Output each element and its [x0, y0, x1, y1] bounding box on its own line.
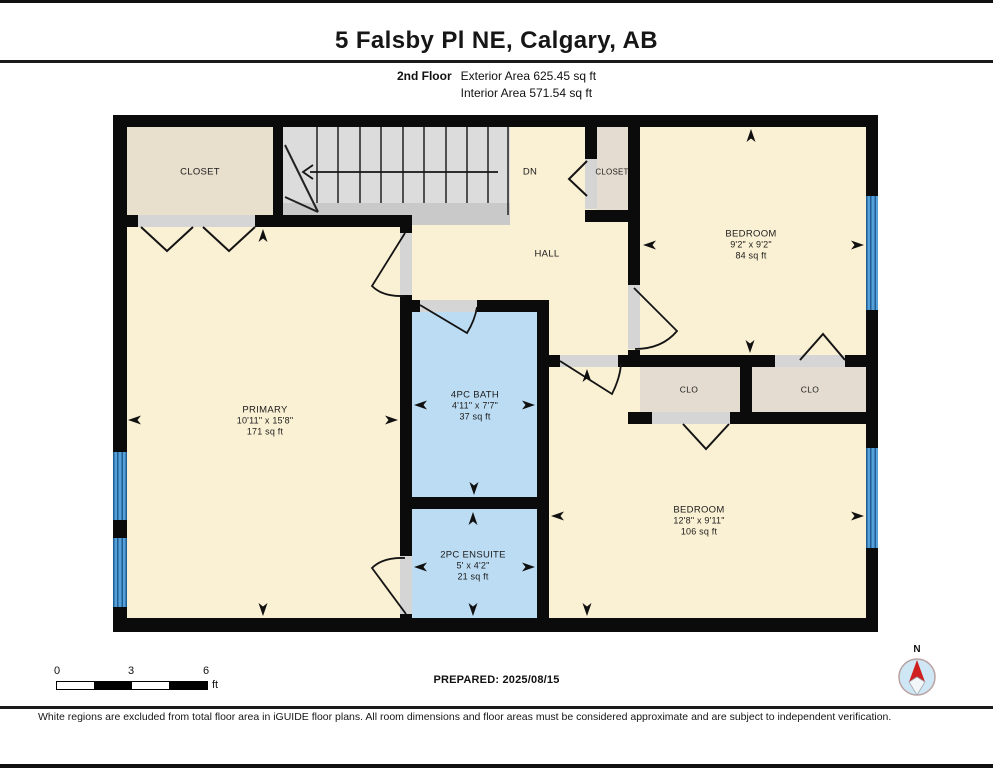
window-primary-upper — [113, 452, 127, 520]
stairs-edge-strip — [283, 203, 510, 215]
room-area: 21 sq ft — [440, 572, 506, 583]
wall-bedroom-tr-left-a — [628, 127, 640, 285]
room-dims: 5' x 4'2" — [440, 561, 506, 572]
room-area: 171 sq ft — [237, 427, 294, 438]
wall-bath-right — [537, 300, 549, 632]
opening-primary-door — [400, 233, 412, 295]
room-dims: 12'8" x 9'11" — [673, 516, 724, 527]
room-label-closet-tl: CLOSET — [180, 167, 220, 178]
room-name: CLOSET — [595, 167, 628, 178]
room-label-hall: HALL — [535, 249, 560, 260]
window-bedroom-br — [866, 448, 878, 548]
opening-clo-left — [652, 412, 730, 424]
room-dims: 10'11" x 15'8" — [237, 416, 294, 427]
compass-north-label: N — [908, 644, 926, 655]
opening-clo-right — [775, 355, 845, 367]
room-area: 84 sq ft — [725, 251, 776, 262]
room-label-bath: 4PC BATH 4'11" x 7'7" 37 sq ft — [451, 390, 499, 423]
room-name: BEDROOM — [673, 505, 724, 516]
compass-icon — [894, 655, 940, 701]
opening-bedroom-tr-door — [628, 285, 640, 349]
opening-closet-tl — [138, 215, 255, 227]
window-bedroom-tr — [866, 196, 878, 310]
floorplan: CLOSET DN CLOSET HALL BEDROOM 9'2" x 9'2… — [0, 0, 993, 768]
room-name: BEDROOM — [725, 229, 776, 240]
wall-closet-hall-left — [585, 127, 597, 161]
room-label-bedroom-tr: BEDROOM 9'2" x 9'2" 84 sq ft — [725, 229, 776, 262]
room-name: 4PC BATH — [451, 390, 499, 401]
opening-bedroom-br-door — [560, 355, 618, 367]
room-name: HALL — [535, 249, 560, 260]
wall-closet-tl-right — [273, 127, 283, 215]
room-label-primary: PRIMARY 10'11" x 15'8" 171 sq ft — [237, 405, 294, 438]
window-primary-lower — [113, 538, 127, 607]
opening-bath-door — [420, 300, 477, 312]
prepared-date: PREPARED: 2025/08/15 — [0, 674, 993, 686]
wall-outer-top — [113, 115, 878, 127]
stairs-hall-strip — [412, 215, 510, 225]
disclaimer-text: White regions are excluded from total fl… — [38, 711, 891, 723]
wall-outer-right — [866, 115, 878, 632]
room-label-bedroom-br: BEDROOM 12'8" x 9'11" 106 sq ft — [673, 505, 724, 538]
wall-outer-bottom — [113, 618, 878, 632]
floorplan-page: 5 Falsby Pl NE, Calgary, AB 2nd Floor Ex… — [0, 0, 993, 768]
dn-text: DN — [523, 167, 537, 178]
room-label-clo-left: CLO — [680, 385, 698, 396]
wall-bath-ensuite-divider — [412, 497, 537, 509]
room-name: CLO — [801, 385, 819, 396]
stairs-dn-label: DN — [523, 167, 537, 178]
room-name: CLO — [680, 385, 698, 396]
room-label-ensuite: 2PC ENSUITE 5' x 4'2" 21 sq ft — [440, 550, 506, 583]
room-dims: 9'2" x 9'2" — [725, 240, 776, 251]
room-dims: 4'11" x 7'7" — [451, 401, 499, 412]
footer-divider — [0, 706, 993, 709]
room-area: 106 sq ft — [673, 527, 724, 538]
room-name: 2PC ENSUITE — [440, 550, 506, 561]
stairs-area — [283, 127, 510, 205]
room-name: PRIMARY — [237, 405, 294, 416]
room-area: 37 sq ft — [451, 412, 499, 423]
room-name: CLOSET — [180, 167, 220, 178]
opening-ensuite-door — [400, 556, 412, 614]
room-label-clo-right: CLO — [801, 385, 819, 396]
room-label-closet-hall: CLOSET — [595, 167, 628, 178]
